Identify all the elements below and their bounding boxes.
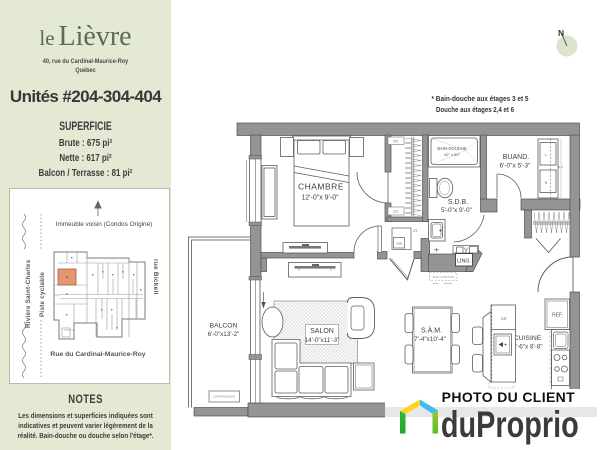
svg-text:BAIN-DOUCHE: BAIN-DOUCHE	[437, 146, 467, 151]
svg-text:B.C.: B.C.	[558, 165, 564, 169]
svg-text:32" x 60": 32" x 60"	[444, 152, 461, 157]
svg-text:8'-6"x 8'-8": 8'-6"x 8'-8"	[513, 344, 543, 351]
svg-text:CUISINE: CUISINE	[514, 335, 542, 342]
svg-text:S.D.B.: S.D.B.	[448, 199, 468, 206]
svg-text:* Bain-douche aux étages 3 et: * Bain-douche aux étages 3 et 5	[432, 94, 529, 103]
svg-text:6'-0"x13'-2": 6'-0"x13'-2"	[208, 331, 240, 338]
svg-text:ST.: ST.	[393, 139, 399, 144]
svg-text:LING.: LING.	[457, 259, 471, 265]
svg-text:CHE: CHE	[396, 242, 402, 246]
svg-text:BALCON: BALCON	[210, 323, 238, 330]
svg-text:14'-0"x11'-3": 14'-0"x11'-3"	[305, 337, 340, 344]
svg-text:Douche aux étages 2,4 et 6: Douche aux étages 2,4 et 6	[436, 105, 514, 114]
svg-text:BAR COMPTOIR: BAR COMPTOIR	[433, 275, 455, 279]
svg-text:5'-0"x 9'-0": 5'-0"x 9'-0"	[441, 207, 473, 214]
svg-text:7'-4"x10'-4": 7'-4"x10'-4"	[414, 336, 446, 343]
svg-text:BUAND.: BUAND.	[503, 154, 530, 161]
svg-text:N: N	[558, 28, 564, 38]
svg-text:GT.: GT.	[413, 229, 418, 233]
svg-text:S.À.M.: S.À.M.	[421, 326, 442, 335]
svg-text:COMPRESSEUR: COMPRESSEUR	[213, 395, 235, 399]
svg-text:6'-0"x 5'-3": 6'-0"x 5'-3"	[500, 163, 532, 170]
svg-text:LV: LV	[501, 316, 506, 321]
svg-text:ST.: ST.	[393, 209, 399, 214]
svg-text:SALON: SALON	[310, 328, 334, 335]
svg-text:12'-0"x 9'-0": 12'-0"x 9'-0"	[301, 195, 339, 202]
svg-text:CHAMBRE: CHAMBRE	[298, 182, 344, 192]
svg-text:RÉF.: RÉF.	[552, 312, 563, 319]
svg-text:S: S	[545, 180, 548, 185]
